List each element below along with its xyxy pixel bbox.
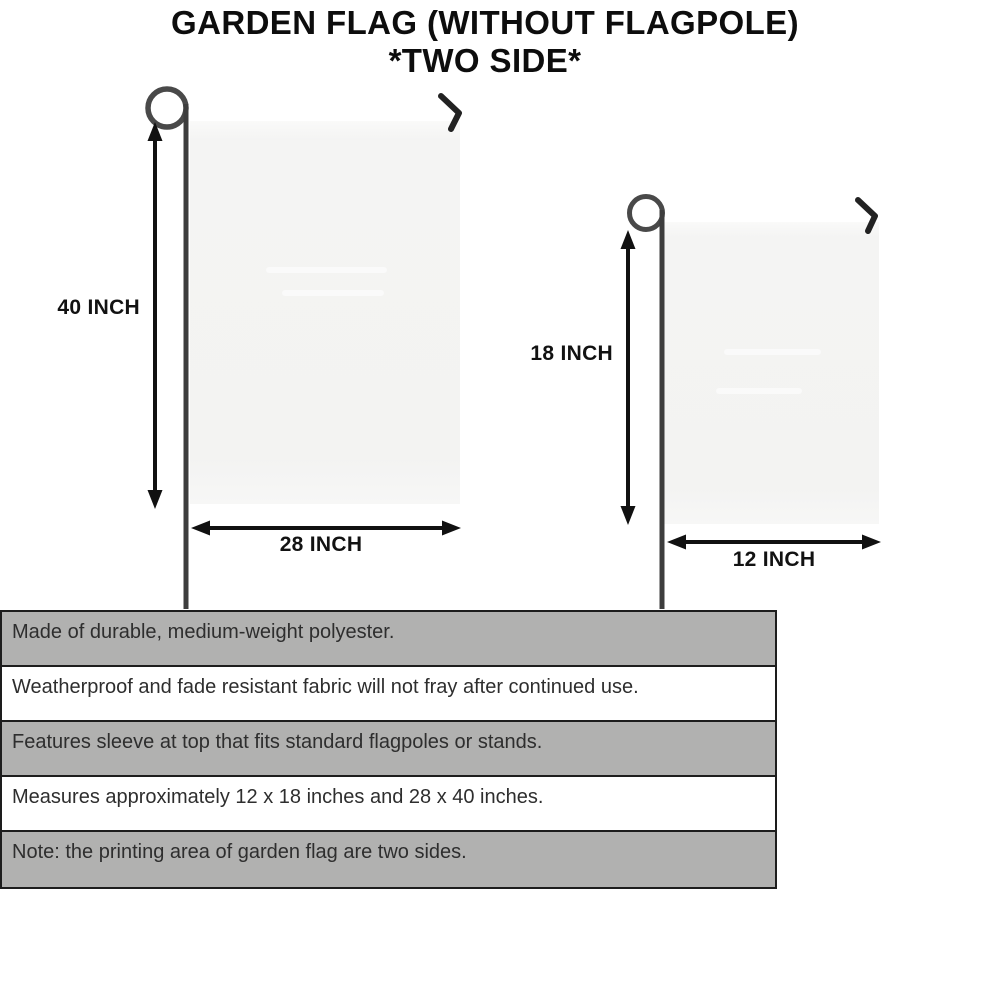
pole-loop-icon xyxy=(630,197,663,230)
height-dimension-arrow-small xyxy=(621,230,636,525)
large-flag-width-label: 28 INCH xyxy=(250,533,392,557)
flag-clip-hook-icon xyxy=(441,96,459,129)
spec-table: Made of durable, medium-weight polyester… xyxy=(0,610,777,889)
height-dimension-arrow-large xyxy=(148,122,163,509)
large-flag-height-label: 40 INCH xyxy=(30,296,140,320)
spec-row: Weatherproof and fade resistant fabric w… xyxy=(2,667,775,722)
spec-text: Features sleeve at top that fits standar… xyxy=(12,731,542,753)
flag-clip-hook-icon xyxy=(858,200,875,231)
spec-text: Weatherproof and fade resistant fabric w… xyxy=(12,676,639,698)
spec-row: Measures approximately 12 x 18 inches an… xyxy=(2,777,775,832)
spec-text: Note: the printing area of garden flag a… xyxy=(12,841,467,863)
spec-text: Measures approximately 12 x 18 inches an… xyxy=(12,786,543,808)
spec-row: Features sleeve at top that fits standar… xyxy=(2,722,775,777)
small-flag-height-label: 18 INCH xyxy=(500,342,613,366)
spec-row: Note: the printing area of garden flag a… xyxy=(2,832,775,887)
spec-row: Made of durable, medium-weight polyester… xyxy=(2,612,775,667)
pole-loop-icon xyxy=(148,89,186,127)
spec-text: Made of durable, medium-weight polyester… xyxy=(12,621,394,643)
product-infographic: GARDEN FLAG (WITHOUT FLAGPOLE) *TWO SIDE… xyxy=(0,0,1000,1000)
small-flag-width-label: 12 INCH xyxy=(703,548,845,572)
small-flagpole xyxy=(630,197,663,610)
